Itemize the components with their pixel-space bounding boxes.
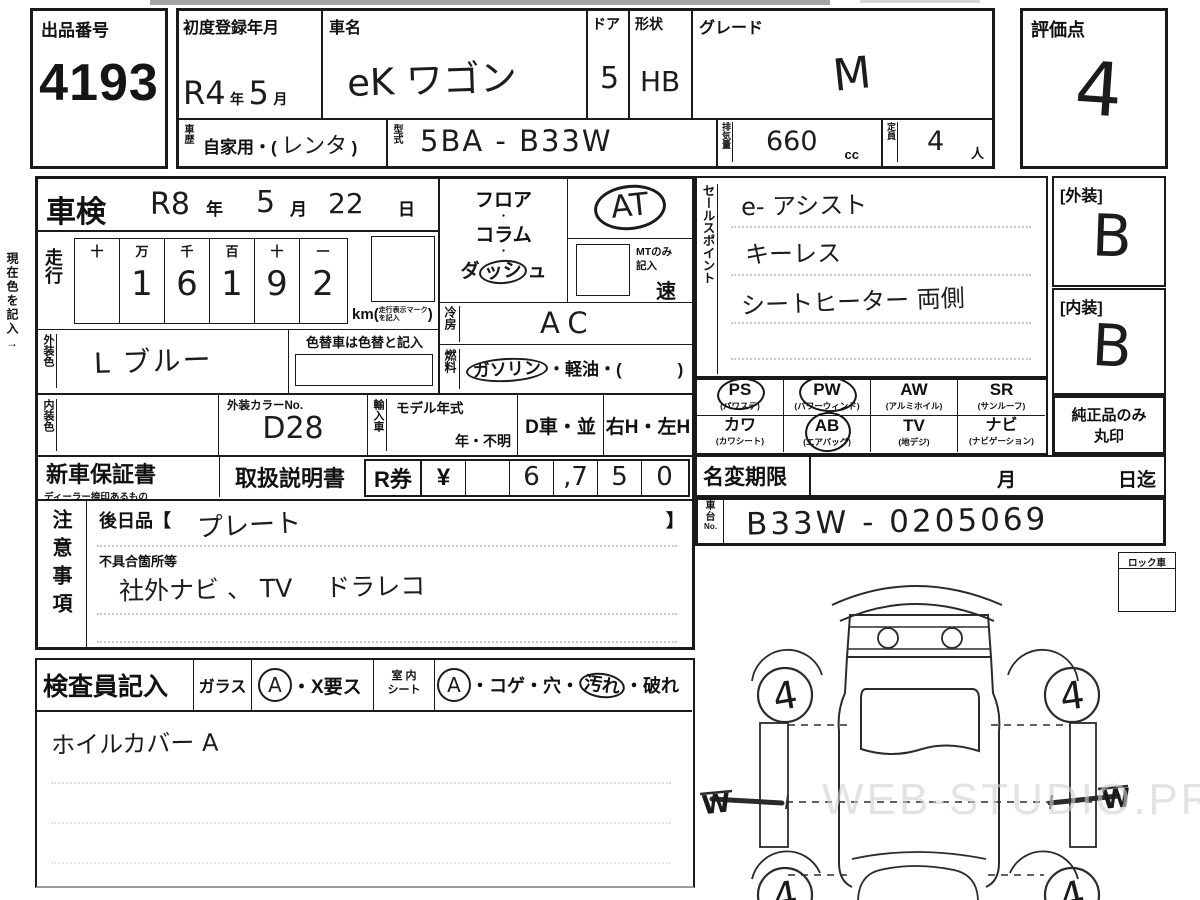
lot-number-box: 出品番号 4193 — [30, 8, 168, 169]
genuine-note-line2: 丸印 — [1055, 425, 1163, 446]
inspection-label: 車検 — [46, 187, 106, 231]
exterior-color-row: 外装色 L ブルー 色替車は色替と記入 — [38, 330, 440, 393]
fuel-close-paren: ) — [678, 360, 684, 379]
equipment-code: TV — [871, 417, 957, 436]
mileage-digit: 6 — [165, 264, 209, 304]
mileage-digit-cell: 一 2 — [300, 239, 346, 323]
grade-label: グレード — [699, 14, 763, 38]
defects-value: 社外ナビ 、 TV ドラレコ — [119, 566, 426, 607]
inspection-year-suffix: 年 — [206, 195, 223, 220]
later-items-label: 後日品【 — [99, 507, 171, 533]
capacity-label: 定員 — [886, 122, 898, 162]
shape-label: 形状 — [635, 14, 663, 34]
speed-suffix: 速 — [656, 275, 676, 304]
sales-point-line: e- アシスト — [741, 185, 868, 222]
equipment-cell-tv: TV (地デジ) — [871, 416, 958, 452]
model-year-value: 年・不明 — [455, 431, 511, 451]
warranty-label: 新車保証書 — [46, 457, 219, 489]
sales-point-line: キーレス — [745, 233, 842, 270]
score-box: 評価点 4 — [1020, 8, 1168, 169]
model-code-value: 5BA - B33W — [420, 124, 613, 158]
mileage-digit-cell: 千 6 — [165, 239, 210, 323]
glass-value-cell: A ・X要ス — [252, 660, 374, 712]
color-change-cell: 色替車は色替と記入 — [288, 330, 440, 393]
sales-points-block: セールスポイント e- アシスト キーレス シートヒーター 両側 — [695, 176, 1048, 378]
doors-label: ドア — [592, 14, 620, 34]
import-car-label: 輸入車 — [372, 399, 387, 451]
glass-grade-circled: A — [258, 668, 292, 702]
seat-condition-pre: ・コゲ・穴・ — [471, 672, 579, 698]
ticket-digit-cell: 0 — [642, 461, 687, 495]
capacity-unit: 人 — [971, 143, 984, 162]
mt-entry-box — [576, 244, 630, 296]
color-change-note: 色替車は色替と記入 — [289, 332, 440, 351]
history-cell: 車歴 自家用・( レンタ ) — [179, 120, 388, 166]
exterior-color-label: 外装色 — [42, 334, 57, 388]
equipment-cell-kawa: カワ (カワシート) — [697, 416, 784, 452]
seat-condition-circled: 汚れ — [577, 669, 626, 700]
equipment-grid: PS (パワステ) PW (パワーウィンド) AW (アルミホイル) SR (サ… — [695, 378, 1048, 455]
defects-label: 不具合箇所等 — [99, 551, 177, 570]
lot-number-value: 4193 — [33, 53, 165, 113]
mileage-header: 万 — [120, 241, 164, 260]
ticket-digit-cell: 5 — [598, 461, 642, 495]
chassis-label-3: No. — [698, 523, 723, 531]
exterior-color-no-cell: 外装カラーNo. D28 — [218, 395, 368, 455]
mileage-header: 十 — [255, 241, 299, 260]
shift-dot: ・ — [440, 247, 567, 255]
equipment-code: ナビ — [958, 417, 1045, 435]
displacement-value: 660 — [766, 126, 818, 157]
exterior-color-value: L ブルー — [93, 338, 213, 382]
glass-condition-text: ・X要ス — [292, 672, 362, 699]
auction-sheet: 現在色を記入→ 出品番号 4193 初度登録年月 R4 年 5 月 車名 eK … — [0, 0, 1200, 900]
manual-label: 取扱説明書 — [235, 461, 345, 493]
genuine-parts-note-box: 純正品のみ 丸印 — [1052, 395, 1166, 455]
capacity-cell: 定員 4 人 — [883, 120, 992, 166]
shape-cell: 形状 HB — [630, 11, 693, 120]
lot-number-label: 出品番号 — [41, 16, 109, 41]
fuel-row: 燃料 ガソリン・軽油・() — [440, 345, 692, 393]
inspection-day-suffix: 日 — [398, 195, 415, 220]
name-change-day-suffix: 日迄 — [1118, 465, 1156, 492]
fuel-label: 燃料 — [444, 349, 460, 389]
inspector-label-cell: 検査員記入 — [37, 660, 194, 712]
dash-circle-mark: ッシ — [479, 259, 529, 286]
history-hand-value: レンタ — [281, 134, 347, 159]
warranty-cell: 新車保証書 ディーラー捺印あるもの — [38, 457, 220, 497]
handle-cell: 右H・左H — [604, 395, 692, 455]
history-label: 車歴 — [182, 124, 192, 144]
inspector-block: 検査員記入 ガラス A ・X要ス 室 内 シート A ・コゲ・穴・ 汚れ ・破れ… — [35, 658, 695, 888]
equipment-name: (アルミホイル) — [871, 400, 957, 412]
mileage-digit: 2 — [300, 264, 346, 304]
equipment-name: (カワシート) — [697, 435, 783, 447]
tire-depth-front-left: 4 — [769, 672, 800, 720]
name-change-row: 名変期限 月 日迄 — [695, 455, 1166, 497]
equipment-name: (地デジ) — [871, 436, 957, 448]
displacement-unit: cc — [845, 147, 859, 162]
model-code-label: 型式 — [391, 124, 401, 144]
history-printed: 自家用・( — [203, 138, 277, 157]
sales-points-label: セールスポイント — [701, 184, 718, 374]
shift-column-label: コラム — [440, 220, 567, 247]
margin-note-current-color: 現在色を記入→ — [6, 252, 18, 352]
ticket-digit-cell — [466, 461, 510, 495]
front-bumper-outline — [832, 586, 1002, 605]
chassis-label-1: 車 — [698, 502, 723, 513]
displacement-label: 排気量 — [721, 122, 733, 162]
later-items-value: プレート — [196, 502, 302, 544]
equipment-name: (ナビゲーション) — [958, 435, 1045, 447]
glass-label: ガラス — [199, 673, 247, 697]
score-value: 4 — [1072, 45, 1125, 134]
interior-grade-box: [内装] B — [1052, 288, 1166, 395]
cooling-row: 冷房 AC — [440, 303, 692, 345]
windshield-band — [847, 615, 991, 657]
mt-note-2: 記入 — [636, 260, 672, 274]
first-registration-cell: 初度登録年月 R4 年 5 月 — [179, 11, 323, 120]
inspection-year: R8 — [150, 187, 190, 222]
at-cell: AT — [568, 179, 692, 239]
mileage-note-2: を記入 — [379, 315, 428, 323]
interior-color-label: 内装色 — [42, 399, 57, 451]
inspection-expiry-cell: 車検 R8 年 5 月 22 日 — [38, 179, 440, 232]
inspection-day: 22 — [328, 187, 364, 220]
scan-streak — [150, 0, 830, 5]
body-side-right — [986, 657, 999, 887]
mileage-header: 十 — [75, 241, 119, 260]
mileage-digit-table: 十 万 1 千 6 百 1 十 9 — [74, 238, 348, 324]
body-side-left — [839, 657, 852, 887]
mileage-unit: km — [352, 306, 374, 323]
mileage-header: 百 — [210, 241, 254, 260]
mileage-header: 一 — [300, 241, 346, 260]
equipment-name: (サンルーフ) — [958, 400, 1045, 412]
mileage-label: 走行 — [44, 248, 62, 284]
doors-cell: ドア 5 — [588, 11, 630, 120]
cooling-label: 冷房 — [444, 306, 460, 342]
at-circled-value: AT — [592, 181, 668, 233]
capacity-value: 4 — [927, 126, 944, 157]
seat-value-cell: A ・コゲ・穴・ 汚れ ・破れ — [435, 660, 692, 712]
mirror-dot-left — [878, 628, 898, 648]
sales-point-line: シートヒーター 両側 — [740, 278, 965, 321]
car-name-label: 車名 — [329, 14, 361, 38]
rear-window — [858, 866, 978, 900]
car-name-cell: 車名 eK ワゴン — [323, 11, 588, 120]
front-bumper-inner — [840, 604, 994, 621]
shape-value: HB — [640, 65, 680, 98]
mileage-digit: 1 — [120, 264, 164, 304]
interior-color-row: 内装色 外装カラーNo. D28 輸入車 モデル年式 年・不明 D車・並 右H・… — [38, 393, 692, 457]
rear-crease — [852, 852, 986, 859]
color-change-box — [295, 354, 433, 386]
cautions-label: 注意事項 — [50, 509, 70, 649]
seat-label-cell: 室 内 シート — [374, 660, 435, 712]
watermark: WEB-STUDIO.PRO — [822, 775, 1200, 825]
seat-grade-circled: A — [437, 668, 471, 702]
mileage-digit: 9 — [255, 264, 299, 304]
chassis-number-value: B33W - 0205069 — [746, 501, 1049, 542]
equipment-cell-aw: AW (アルミホイル) — [871, 380, 958, 416]
ticket-digit-cell: 6 — [510, 461, 554, 495]
shift-floor-label: フロア — [440, 185, 567, 212]
warranty-row: 新車保証書 ディーラー捺印あるもの 取扱説明書 R券 ¥ 6 ,7 5 0 — [38, 457, 692, 501]
mt-cell: MTのみ 記入 速 — [568, 239, 692, 303]
mirror-dot-right — [942, 628, 962, 648]
model-code-cell: 型式 5BA - B33W — [388, 120, 718, 166]
cooling-value: AC — [540, 306, 596, 340]
mileage-header: 千 — [165, 241, 209, 260]
seat-label-line1: 室 内 — [374, 670, 434, 684]
tire-depth-front-right: 4 — [1057, 673, 1087, 720]
tire-depth-rear-right: 4 — [1055, 872, 1089, 900]
shift-position-cell: フロア ・ コラム ・ ダッシュ — [440, 179, 568, 303]
history-close: ) — [352, 138, 358, 157]
cautions-block: 注意事項 後日品【 プレート 】 不具合箇所等 社外ナビ 、 TV ドラレコ — [38, 501, 692, 647]
equipment-code: SR — [958, 381, 1045, 400]
mileage-unit-note: km ( 走行表示マーク を記入 ) — [352, 306, 433, 323]
fuel-options-rest: ・軽油・( — [548, 360, 622, 379]
first-reg-month-suffix: 月 — [273, 91, 287, 107]
mileage-digit-cell: 十 — [75, 239, 120, 323]
manual-cell: 取扱説明書 — [220, 457, 360, 497]
mileage-digit-cell: 十 9 — [255, 239, 300, 323]
mileage-empty-box — [371, 236, 435, 302]
currency-symbol: ¥ — [437, 464, 450, 492]
seat-condition-post: ・破れ — [625, 672, 679, 698]
genuine-note-line1: 純正品のみ — [1055, 404, 1163, 425]
fuel-circled-option: ガソリン — [465, 356, 548, 384]
car-name-value: eK ワゴン — [346, 47, 518, 107]
recycle-ticket-box: R券 ¥ 6 ,7 5 0 — [364, 459, 690, 497]
inspector-label: 検査員記入 — [43, 667, 168, 703]
dealer-car-cell: D車・並 — [518, 395, 604, 455]
equipment-code: カワ — [697, 417, 783, 435]
inspection-month-suffix: 月 — [290, 195, 307, 220]
name-change-month-suffix: 月 — [997, 465, 1016, 492]
main-left-block: 車検 R8 年 5 月 22 日 走行 十 万 1 千 6 — [35, 176, 695, 650]
scan-streak-2 — [860, 0, 980, 3]
displacement-cell: 排気量 660 cc — [718, 120, 883, 166]
first-reg-year-suffix: 年 — [230, 91, 244, 107]
first-registration-label: 初度登録年月 — [183, 14, 279, 38]
tire-depth-rear-left: 4 — [769, 872, 800, 900]
inspection-month: 5 — [256, 185, 275, 220]
inspector-note-value: ホイルカバー A — [51, 723, 219, 761]
top-table: 初度登録年月 R4 年 5 月 車名 eK ワゴン ドア 5 形状 HB グレー… — [176, 8, 995, 169]
first-reg-month: 5 — [249, 74, 269, 112]
doors-value: 5 — [600, 61, 619, 96]
seat-label-line2: シート — [374, 684, 434, 698]
later-items-close: 】 — [666, 507, 684, 533]
glass-label-cell: ガラス — [194, 660, 252, 712]
mt-note-1: MTのみ — [636, 246, 672, 260]
exterior-grade-value: B — [1091, 201, 1133, 270]
shift-dot: ・ — [440, 212, 567, 220]
chassis-number-row: 車 台 No. B33W - 0205069 — [695, 497, 1166, 546]
dealer-car-value: D車・並 — [525, 412, 596, 439]
handle-value: 右H・左H — [606, 412, 690, 439]
side-panel-left — [760, 723, 788, 847]
score-label: 評価点 — [1031, 16, 1085, 42]
exterior-color-no-value: D28 — [219, 411, 367, 446]
car-top-view-diagram: W W 4 4 4 4 — [700, 565, 1130, 900]
exterior-grade-box: [外装] B — [1052, 176, 1166, 287]
ticket-digit-cell: ,7 — [554, 461, 598, 495]
first-reg-era: R4 — [183, 74, 226, 112]
mileage-row: 走行 十 万 1 千 6 百 1 十 — [38, 232, 440, 330]
roof-panel — [861, 689, 979, 754]
name-change-label: 名変期限 — [703, 461, 787, 491]
mileage-digit: 1 — [210, 264, 254, 304]
recycle-ticket-label: R券 — [374, 462, 412, 494]
grade-cell: グレード M — [693, 11, 992, 120]
interior-grade-value: B — [1090, 311, 1133, 381]
model-year-label: モデル年式 — [396, 397, 517, 417]
grade-value: M — [830, 47, 873, 102]
equipment-cell-sr: SR (サンルーフ) — [958, 380, 1045, 416]
model-year-cell: モデル年式 年・不明 — [392, 395, 518, 455]
shift-dash-label: ダッシュ — [440, 256, 567, 284]
equipment-code: AW — [871, 381, 957, 400]
mileage-note-1: 走行表示マーク — [379, 307, 428, 315]
equipment-cell-navi: ナビ (ナビゲーション) — [958, 416, 1045, 452]
mileage-digit-cell: 百 1 — [210, 239, 255, 323]
mileage-digit-cell: 万 1 — [120, 239, 165, 323]
